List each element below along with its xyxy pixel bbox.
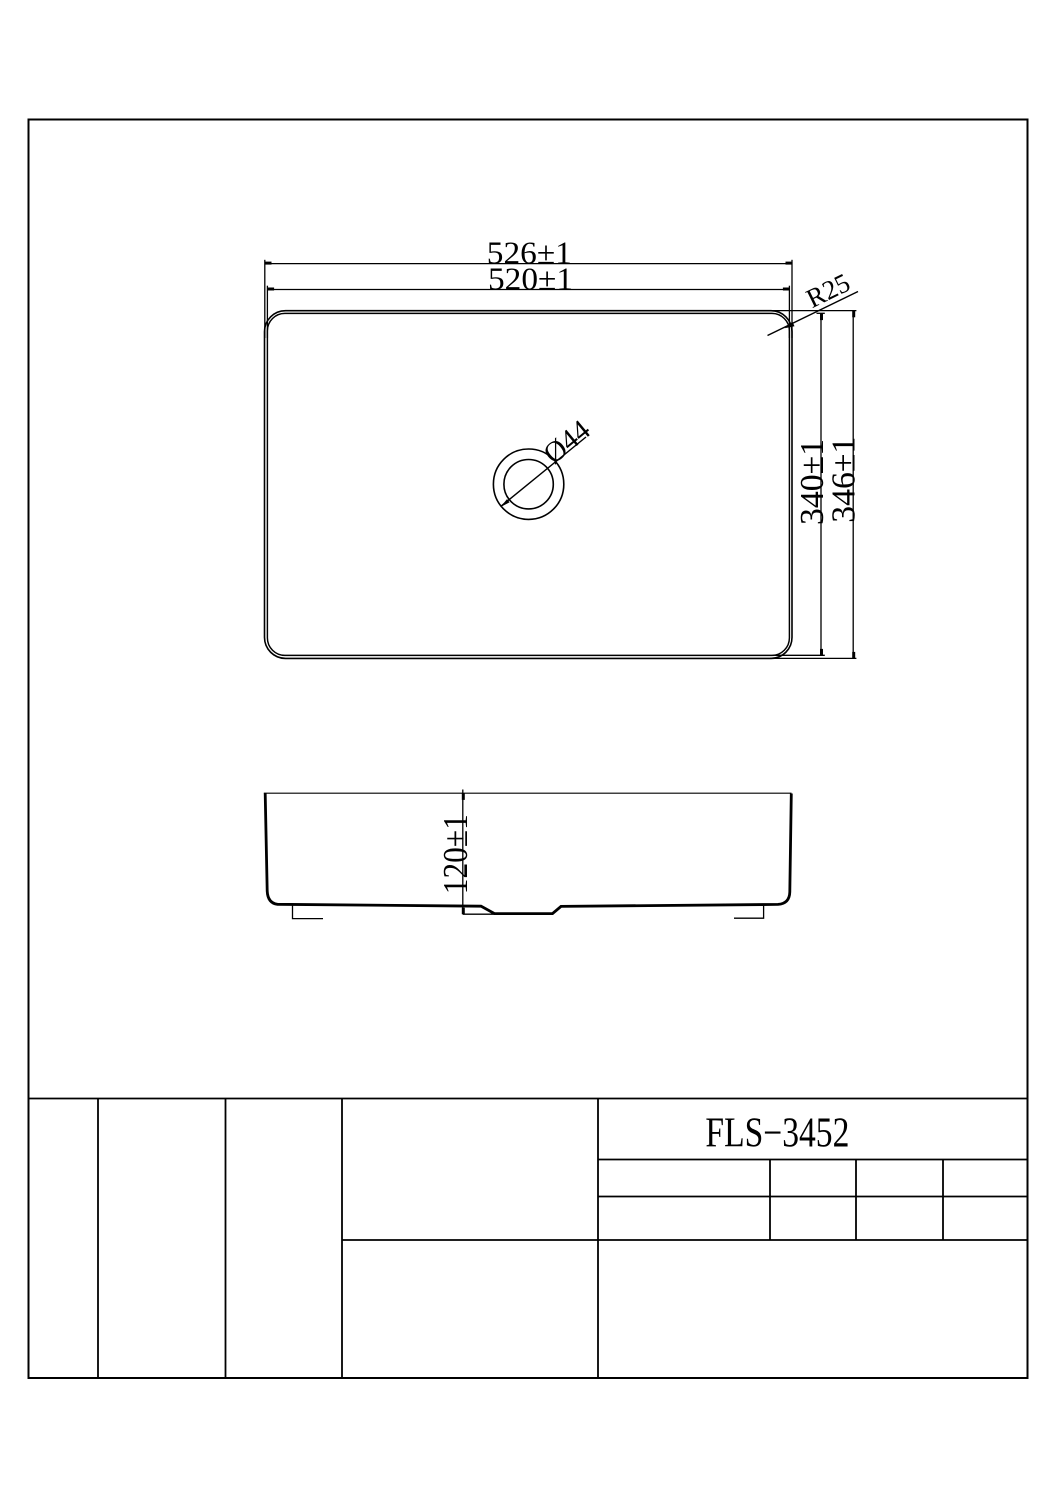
svg-text:346±1: 346±1 — [826, 437, 863, 523]
svg-text:FLS−3452: FLS−3452 — [705, 1111, 849, 1157]
svg-text:120±1: 120±1 — [436, 814, 475, 894]
svg-text:520±1: 520±1 — [488, 260, 573, 296]
